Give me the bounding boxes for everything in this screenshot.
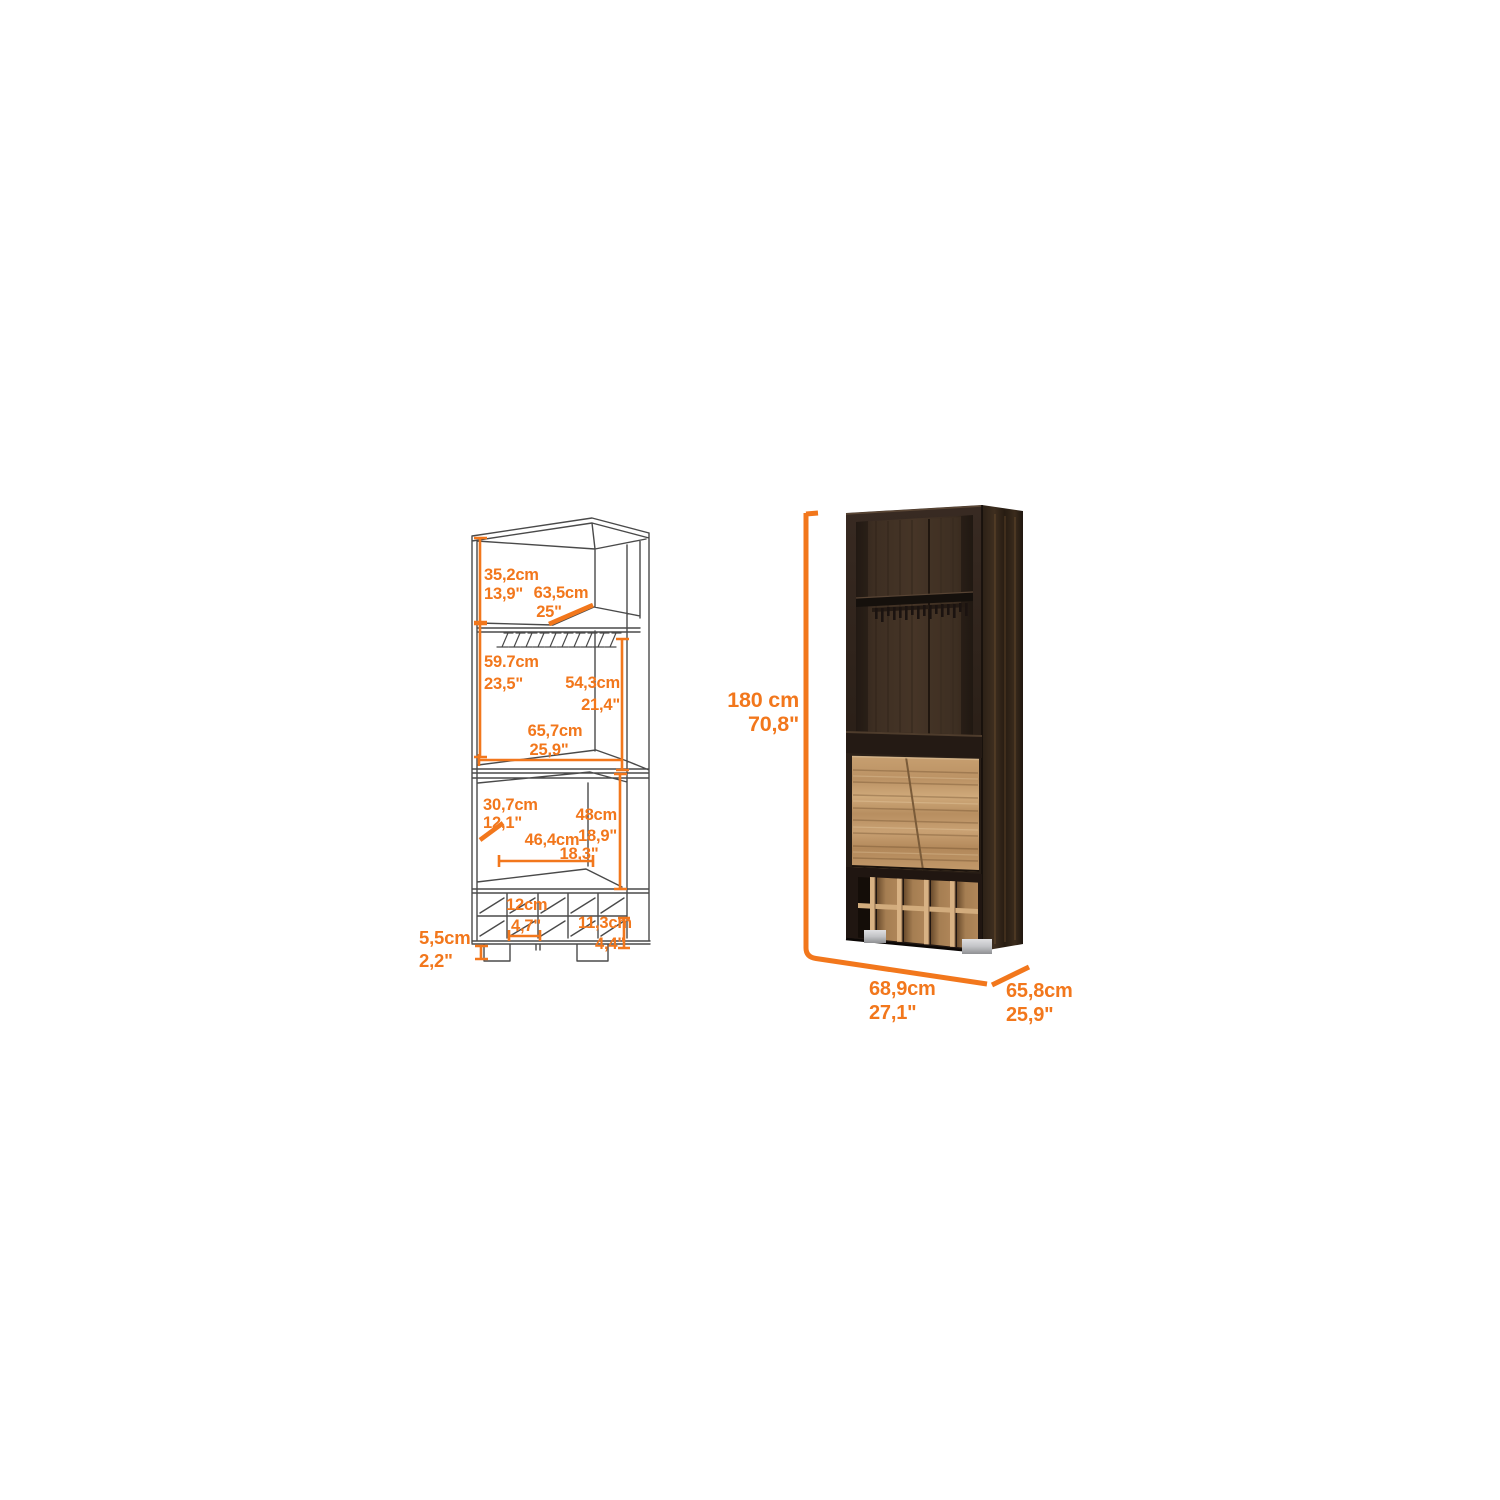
dim-inner-height-in: 21,4" [581,696,620,714]
dim-width-in: 27,1" [869,1002,916,1024]
wireframe-diagram: 35,2cm 13,9" 63,5cm 25" 59.7cm 23,5" 54,… [419,518,650,971]
dim-width-cm: 68,9cm [869,978,936,1000]
interior-right-shadow [961,515,973,741]
dim-lower-height-in: 18,9" [578,827,617,845]
cabinet-foot-right [962,939,992,954]
diagram-svg: 35,2cm 13,9" 63,5cm 25" 59.7cm 23,5" 54,… [0,0,1500,1500]
dim-mid-height-cm: 59.7cm [484,653,539,671]
cubby-cell [931,880,952,946]
dim-mid-width-in: 25,9" [530,741,569,759]
cabinet-side-panel [982,505,1023,951]
cubby-cell [904,879,926,944]
dim-height-in: 70,8" [748,712,799,736]
dim-top-width-cm: 63,5cm [534,584,589,602]
dim-depth-cm: 65,8cm [1006,980,1073,1002]
cabinet-foot-left [864,930,886,943]
dim-inner-height-cm: 54,3cm [565,674,620,692]
dim-cubby-height-cm: 11,3cm [578,914,632,932]
cubby-cell [957,882,978,950]
dim-lower-depth-cm: 30,7cm [483,796,538,814]
dim-top-height-cm: 35,2cm [484,566,539,584]
interior-left-shadow [856,521,868,734]
dim-lower-height-cm: 48cm [576,806,617,824]
cabinet-render: 180 cm 70,8" 68,9cm 27,1" 65,8cm 25,9" [727,505,1072,1026]
dim-mid-height-in: 23,5" [484,675,523,693]
dim-top-width-in: 25" [536,603,562,621]
dim-lower-depth-in: 12,1" [483,814,522,832]
dim-foot-height-in: 2,2" [419,950,453,971]
product-dimension-diagram: 35,2cm 13,9" 63,5cm 25" 59.7cm 23,5" 54,… [0,0,1500,1500]
dim-cubby-width-cm: 12cm [506,896,547,914]
dim-cubby-width-in: 4,7" [511,917,541,935]
interior-corner-panel [929,517,961,740]
dim-depth-in: 25,9" [1006,1004,1053,1026]
dim-lower-width-in: 18,3" [560,845,599,863]
wireframe-stemware-rack [497,633,621,647]
dim-top-height-in: 13,9" [484,585,523,603]
dim-cubby-height-in: 4,4" [595,935,625,953]
dim-mid-width-cm: 65,7cm [528,722,583,740]
dim-height-cm: 180 cm [727,688,799,712]
dim-foot-height-cm: 5,5cm [419,927,470,948]
